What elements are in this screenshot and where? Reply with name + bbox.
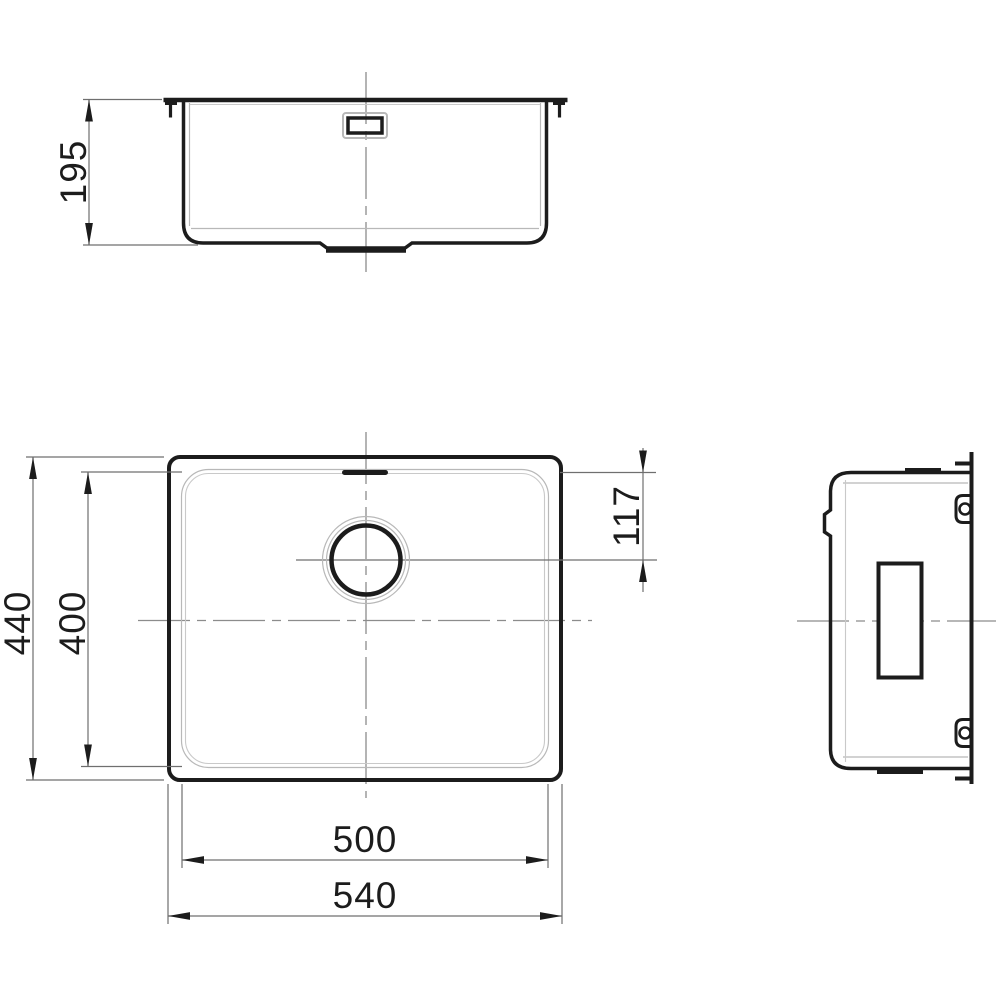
mounting-clip-bottom — [956, 720, 971, 747]
sink-outline-plan — [169, 457, 561, 780]
side-elevation-view — [797, 452, 996, 784]
fixing-lug-side-bottom — [877, 769, 923, 775]
dimension-label-depth: 195 — [53, 140, 94, 205]
dimension-drain-offset-117: 117 — [560, 448, 656, 592]
technical-drawing-page: 195 440 — [0, 0, 1000, 1000]
fixing-lug-side-top — [905, 468, 941, 473]
overflow-slot-plan — [342, 470, 388, 475]
dimension-depth-195: 195 — [53, 100, 198, 246]
bowl-edge-outer — [182, 470, 549, 768]
clip-screw-hole — [960, 504, 971, 515]
drain-plan — [296, 517, 657, 604]
clip-screw-hole — [960, 728, 971, 739]
fixing-lug-front-right — [553, 102, 565, 118]
overflow-front — [343, 113, 387, 138]
dimension-label-overall-width: 440 — [0, 591, 38, 656]
dimension-label-drain-offset: 117 — [606, 485, 647, 547]
dimension-label-bowl-length: 500 — [333, 819, 398, 860]
fixing-lug-front-left — [165, 102, 177, 118]
drain-housing-side — [879, 564, 922, 678]
dimension-bowl-length-500: 500 — [182, 784, 548, 868]
dimension-bowl-width-400: 400 — [52, 472, 182, 767]
overflow-hole — [348, 118, 382, 133]
bowl-profile-front — [184, 102, 547, 250]
mounting-clip-top — [956, 496, 971, 523]
plan-view: 440 400 117 500 540 — [0, 432, 657, 924]
sink-technical-drawing: 195 440 — [0, 0, 1000, 1000]
dimension-label-overall-length: 540 — [333, 875, 398, 916]
front-elevation-view: 195 — [53, 72, 568, 272]
dimension-label-bowl-width: 400 — [52, 591, 93, 656]
